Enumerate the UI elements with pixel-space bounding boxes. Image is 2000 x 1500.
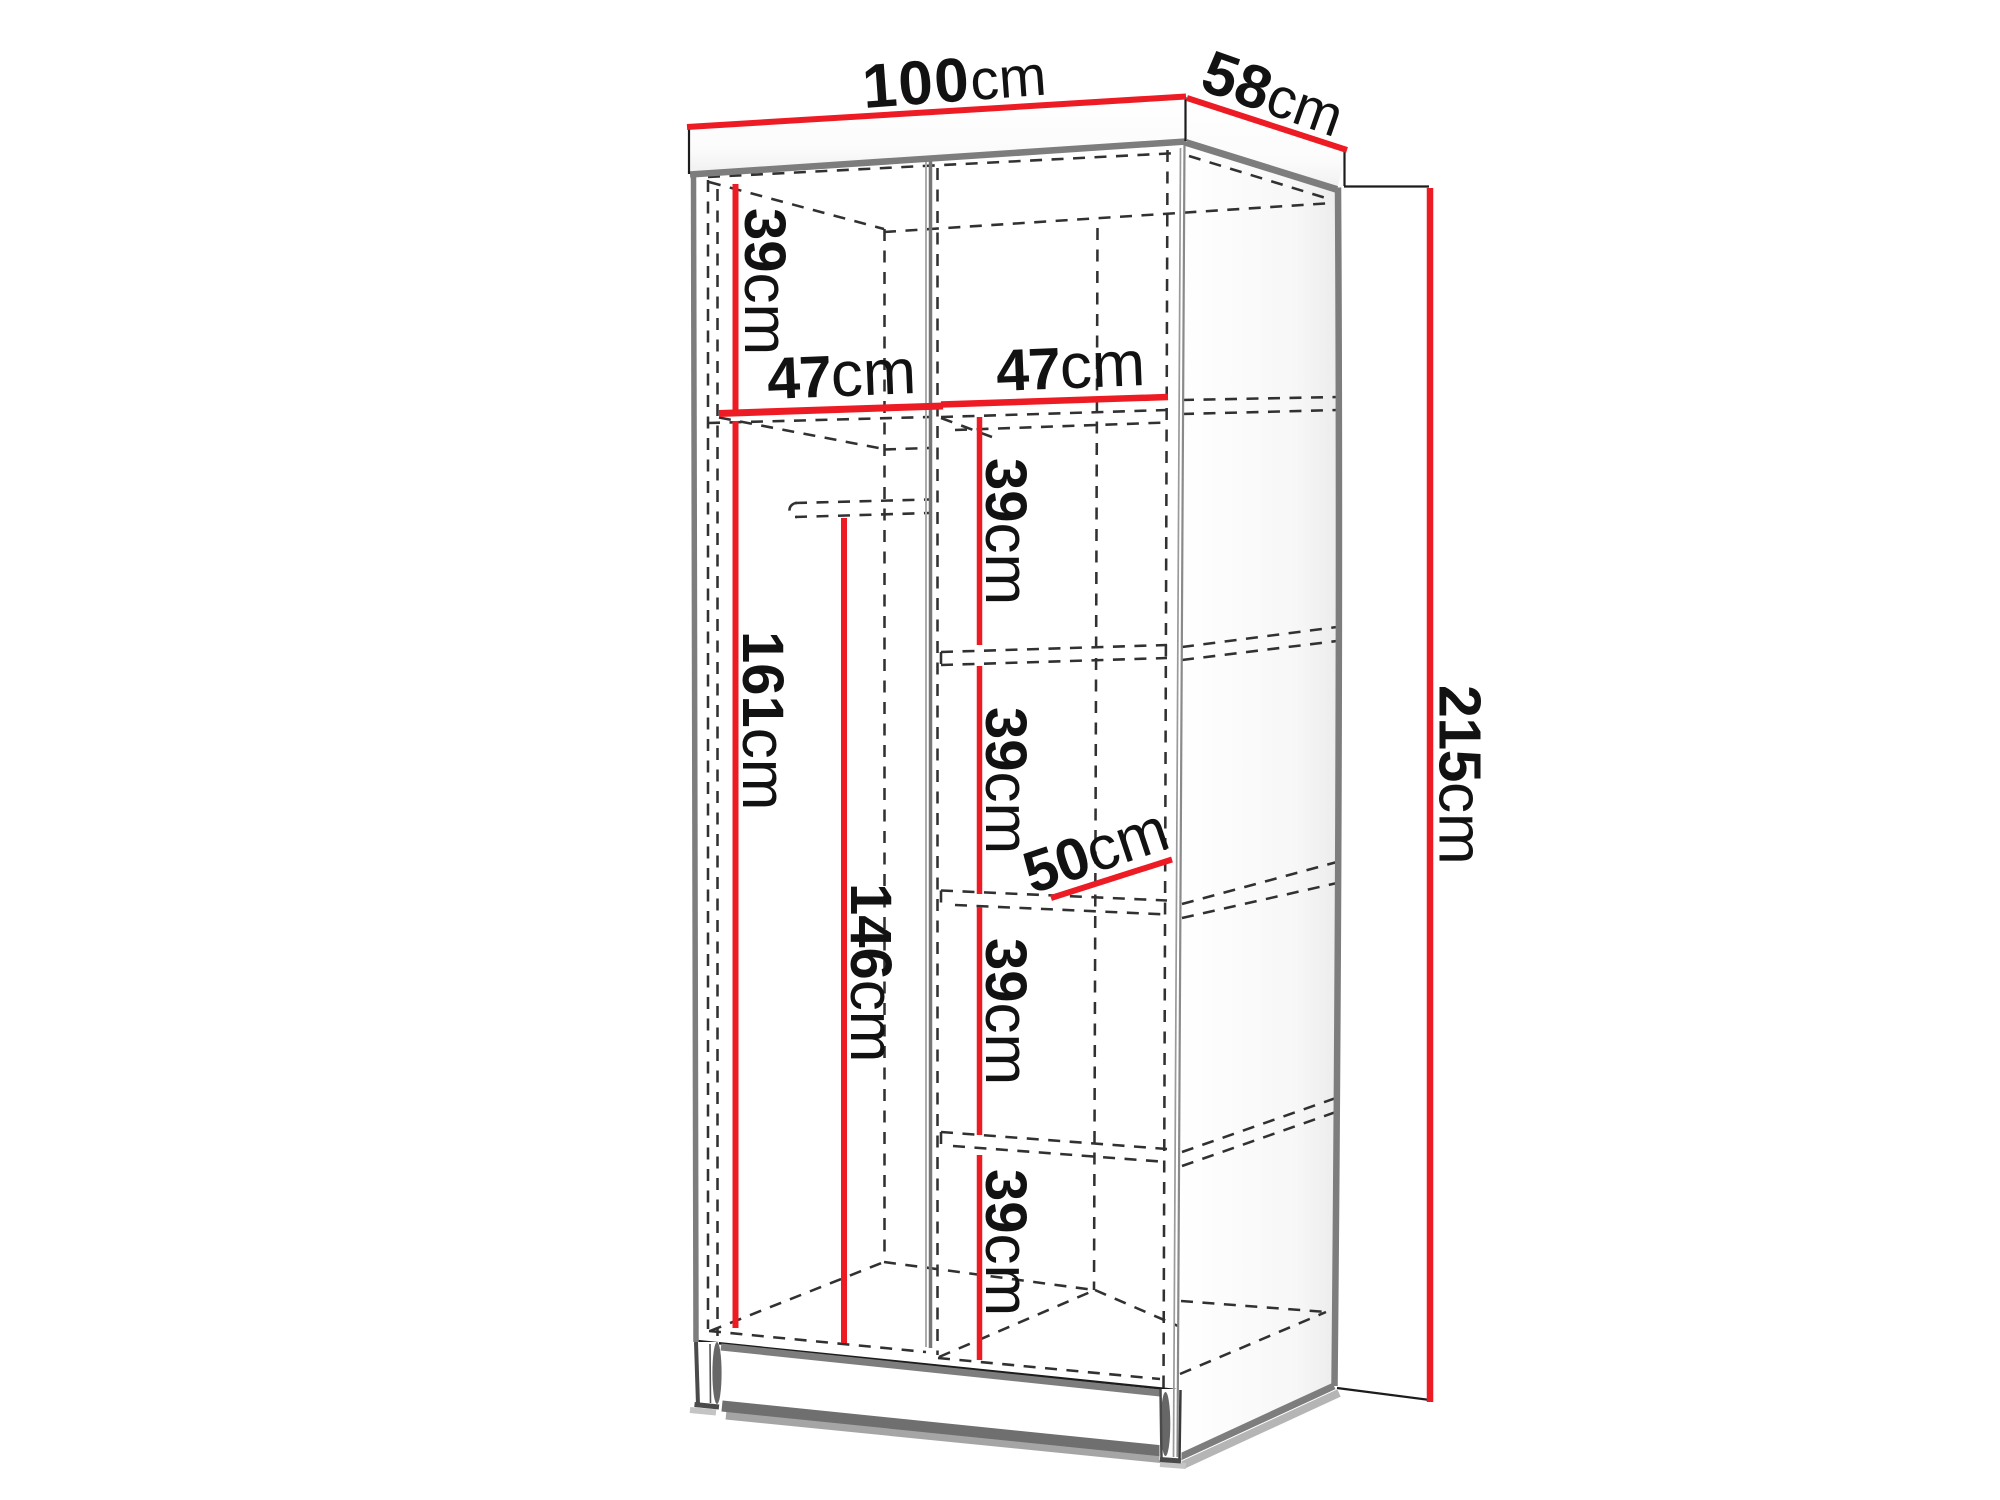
svg-text:47cm: 47cm (995, 327, 1147, 405)
svg-text:39cm: 39cm (972, 938, 1041, 1085)
svg-text:39cm: 39cm (972, 1169, 1041, 1316)
svg-text:39cm: 39cm (731, 208, 800, 355)
svg-text:146cm: 146cm (837, 883, 906, 1062)
svg-text:215cm: 215cm (1426, 685, 1495, 865)
svg-text:39cm: 39cm (972, 707, 1041, 854)
svg-text:39cm: 39cm (972, 458, 1041, 605)
svg-text:161cm: 161cm (729, 631, 798, 810)
svg-text:47cm: 47cm (766, 335, 918, 413)
